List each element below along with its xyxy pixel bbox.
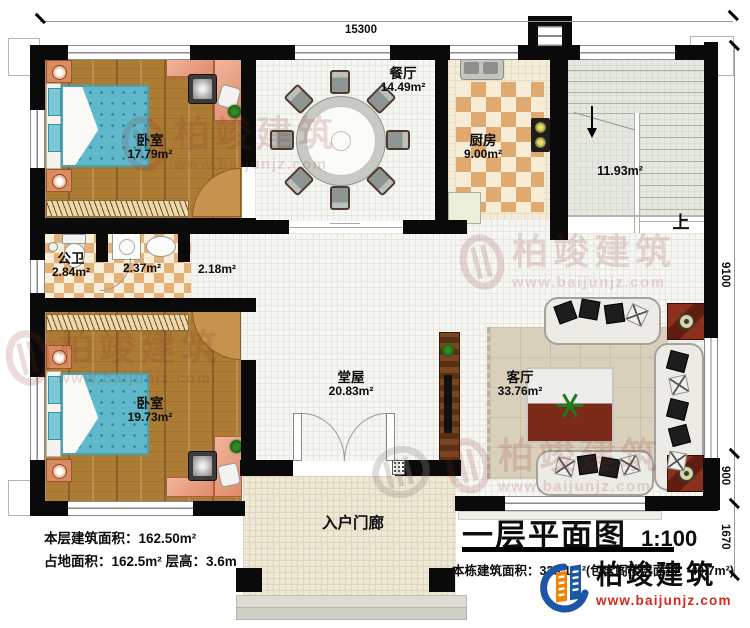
room-name: 餐厅 xyxy=(368,66,438,81)
note-floor-area: 本层建筑面积：162.50m² xyxy=(44,527,196,547)
room-label-bath: 公卫 2.84m² xyxy=(40,251,102,280)
chimney-window xyxy=(538,26,562,46)
window xyxy=(68,501,193,516)
bed-pillow xyxy=(48,124,61,152)
room-area: 2.18m² xyxy=(192,263,242,276)
front-door-leaf xyxy=(293,413,302,461)
dining-table-center xyxy=(331,131,351,151)
bed-blanket xyxy=(63,87,98,165)
nightstand xyxy=(46,60,72,83)
room-label-hall: 堂屋 20.83m² xyxy=(316,370,386,399)
hall-floor xyxy=(241,233,456,461)
room-area: 2.84m² xyxy=(40,266,102,279)
porch-floor xyxy=(243,476,456,595)
wardrobe xyxy=(46,314,189,331)
room-name: 堂屋 xyxy=(316,370,386,385)
dimension-line-right xyxy=(734,45,735,578)
room-label-bedroom2: 卧室 19.73m² xyxy=(118,396,182,425)
window xyxy=(30,377,45,460)
dimension-tick xyxy=(35,13,46,24)
room-label-kitchen: 厨房 9.00m² xyxy=(448,133,518,162)
note-land-area: 占地面积：162.5m² 层高：3.6m xyxy=(44,550,237,570)
wall xyxy=(178,232,190,262)
washer-drum xyxy=(119,239,135,255)
room-name: 公卫 xyxy=(40,251,102,266)
sofa-pillow xyxy=(598,456,620,478)
wall xyxy=(241,360,256,460)
sofa-pillow xyxy=(577,454,598,475)
wall xyxy=(241,45,256,167)
wall xyxy=(550,45,568,240)
window xyxy=(505,496,645,511)
nightstand xyxy=(46,459,72,482)
window xyxy=(30,110,45,168)
bed-pillow xyxy=(48,412,61,440)
stairs-up-label: 上 xyxy=(666,213,696,232)
wall xyxy=(240,460,293,476)
title-underline xyxy=(462,547,674,552)
room-label-living: 客厅 33.76m² xyxy=(484,370,556,399)
dining-chair xyxy=(330,186,350,210)
nightstand xyxy=(46,169,72,192)
computer-icon xyxy=(188,74,217,104)
lamp-icon xyxy=(52,174,67,189)
sink-bowl xyxy=(483,62,498,74)
company-logo-icon xyxy=(534,562,590,616)
wall xyxy=(241,220,289,234)
company-url: www.baijunjz.com xyxy=(596,593,732,608)
tv-icon xyxy=(444,375,452,433)
room-area: 14.49m² xyxy=(368,81,438,94)
porch-step xyxy=(236,607,467,620)
room-name: 厨房 xyxy=(448,133,518,148)
room-name: 卧室 xyxy=(118,396,182,411)
up-text: 上 xyxy=(666,213,696,232)
room-area: 17.79m² xyxy=(118,148,182,161)
dimension-top-value: 15300 xyxy=(345,24,377,36)
plant-icon xyxy=(228,105,241,118)
dining-chair xyxy=(270,130,294,150)
lamp-icon xyxy=(52,350,67,365)
desk-chair xyxy=(217,462,241,488)
washing-machine-icon xyxy=(112,233,141,260)
room-label-porch: 入户门廊 xyxy=(298,515,408,532)
room-name: 客厅 xyxy=(484,370,556,385)
room-name: 入户门廊 xyxy=(298,515,408,532)
room-area: 11.93m² xyxy=(585,164,655,178)
sofa-pillow xyxy=(604,303,625,324)
stove-burner xyxy=(535,122,546,133)
sofa-pillow xyxy=(667,451,688,472)
floor-plan-canvas: 卧室 17.79m² 餐厅 14.49m² 厨房 9.00m² 11.93m² … xyxy=(0,0,750,628)
porch-column xyxy=(236,568,262,592)
bed-pillow xyxy=(48,376,61,404)
room-label-hallway: 2.18m² xyxy=(192,263,242,276)
window xyxy=(295,45,390,60)
stair-arrow-head-icon xyxy=(587,128,597,138)
company-logo: 柏竣建筑 www.baijunjz.com xyxy=(534,562,732,616)
bed-blanket xyxy=(63,375,98,453)
stair-direction-arrow xyxy=(591,106,593,130)
window xyxy=(580,45,675,60)
dimension-tick xyxy=(728,10,739,21)
dining-chair xyxy=(386,130,410,150)
dimension-line-top xyxy=(40,21,733,22)
plant-icon xyxy=(442,344,454,356)
sofa-pillow xyxy=(668,374,689,395)
wall xyxy=(30,218,256,234)
bed-pillow xyxy=(48,88,61,116)
wall xyxy=(704,42,718,338)
wardrobe xyxy=(46,200,189,217)
room-area: 20.83m² xyxy=(316,385,386,398)
room-area: 19.73m² xyxy=(118,411,182,424)
room-label-dining: 餐厅 14.49m² xyxy=(368,66,438,95)
dimension-right-mid-value: 900 xyxy=(719,466,731,485)
window xyxy=(450,45,518,60)
computer-icon xyxy=(188,451,217,481)
dining-chair xyxy=(330,70,350,94)
room-label-laundry: 2.37m² xyxy=(116,262,168,275)
wall xyxy=(703,458,720,510)
side-table xyxy=(667,303,706,340)
window xyxy=(68,45,190,60)
sofa-pillow xyxy=(578,298,600,320)
room-label-stairs: 11.93m² xyxy=(585,164,655,178)
stair-treads xyxy=(568,59,705,114)
room-label-bedroom1: 卧室 17.79m² xyxy=(118,133,182,162)
sink-bowl xyxy=(464,62,479,74)
decor-plate-icon xyxy=(678,313,695,330)
sliding-door-track xyxy=(289,227,403,228)
room-area: 33.76m² xyxy=(484,385,556,398)
lamp-icon xyxy=(52,464,67,479)
sofa-pillow xyxy=(554,456,575,477)
dimension-right-top-value: 9100 xyxy=(719,262,731,288)
sliding-door-leaf xyxy=(330,223,360,224)
nightstand xyxy=(46,345,72,369)
company-name: 柏竣建筑 xyxy=(596,562,732,589)
wall xyxy=(30,298,256,312)
stove-burner xyxy=(535,137,546,148)
room-area: 9.00m² xyxy=(448,148,518,161)
room-area: 2.37m² xyxy=(116,262,168,275)
window xyxy=(704,338,718,458)
sink-basin-icon xyxy=(146,236,176,257)
room-name: 卧室 xyxy=(118,133,182,148)
lamp-icon xyxy=(52,65,67,80)
dimension-right-bottom-value: 1670 xyxy=(719,524,731,550)
